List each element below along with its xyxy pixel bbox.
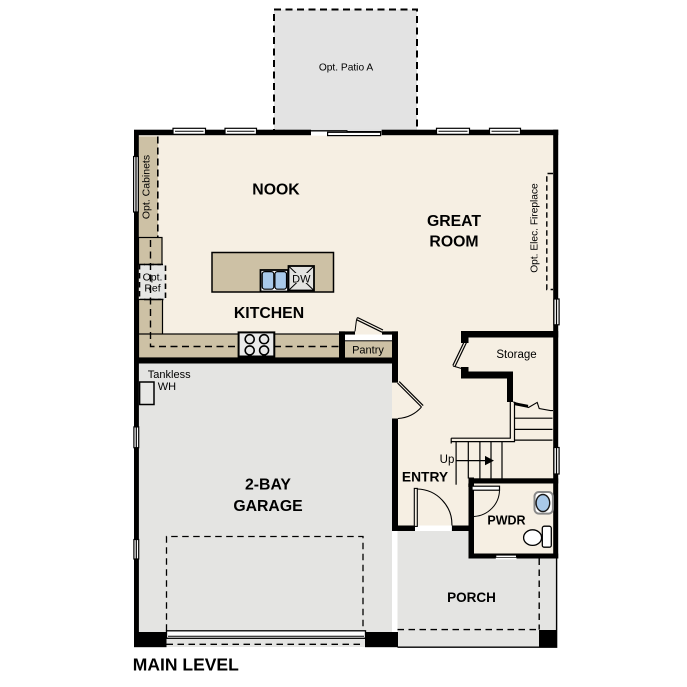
svg-text:2-BAY: 2-BAY	[245, 477, 291, 494]
svg-text:GARAGE: GARAGE	[233, 498, 302, 515]
svg-text:Opt. Patio A: Opt. Patio A	[319, 62, 374, 73]
svg-text:DW: DW	[292, 273, 311, 285]
svg-text:WH: WH	[158, 381, 176, 393]
svg-text:Opt. Elec. Fireplace: Opt. Elec. Fireplace	[529, 183, 540, 273]
svg-text:Pantry: Pantry	[352, 344, 384, 356]
svg-text:PORCH: PORCH	[447, 590, 496, 605]
svg-text:Ref: Ref	[144, 283, 160, 295]
svg-text:GREAT: GREAT	[427, 213, 481, 230]
svg-text:KITCHEN: KITCHEN	[234, 305, 304, 322]
svg-text:Opt. Cabinets: Opt. Cabinets	[141, 155, 153, 219]
svg-text:ENTRY: ENTRY	[402, 470, 448, 485]
svg-text:MAIN LEVEL: MAIN LEVEL	[133, 655, 239, 675]
svg-text:Up: Up	[440, 454, 455, 466]
svg-text:Storage: Storage	[496, 349, 536, 361]
svg-text:ROOM: ROOM	[429, 234, 478, 251]
svg-text:PWDR: PWDR	[487, 514, 525, 528]
svg-text:Tankless: Tankless	[148, 369, 191, 381]
svg-text:NOOK: NOOK	[252, 182, 300, 199]
